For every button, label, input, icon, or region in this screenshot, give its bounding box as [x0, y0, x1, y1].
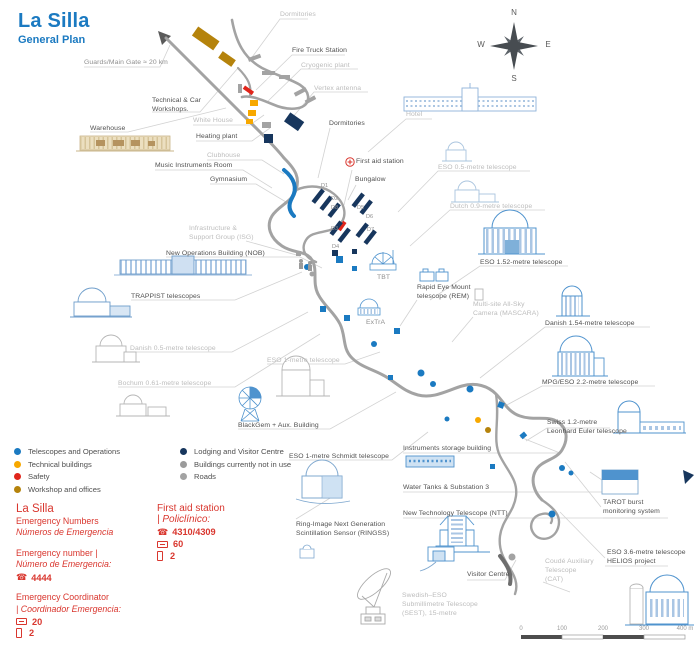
emergency-number-label-en: Emergency number | — [16, 548, 151, 559]
danish-05-telescope-label: Danish 0.5-metre telescope — [130, 345, 216, 354]
scale-tick-label: 100 — [557, 626, 567, 632]
cat-36-illustration — [625, 575, 694, 625]
dorm-label-d2: D2 — [331, 196, 338, 202]
coordinator-phone-value: 2 — [29, 628, 34, 638]
vertex-antenna-label: Vertex antenna — [314, 85, 361, 94]
legend-dot-icon — [14, 448, 21, 455]
blue-route — [284, 170, 295, 216]
dorm-label-d1: D1 — [321, 183, 328, 189]
bochum-telescope-label: Bochum 0.61-metre telescope — [118, 380, 211, 389]
compass-east-label: E — [545, 40, 550, 49]
dorm-label-d8: D8 — [331, 205, 338, 211]
map-title: La Silla — [18, 10, 90, 33]
eso-152-illustration — [478, 210, 545, 254]
first-aid-panel: First aid station | Policlínico: ☎4310/4… — [157, 503, 277, 561]
legend-item: Buildings currently not in use — [180, 460, 291, 469]
rem-telescope-label: Rapid Eye Mounttelescope (REM) — [417, 284, 471, 302]
scale-tick-label: 200 — [598, 626, 608, 632]
warehouse-illustration — [76, 136, 174, 151]
bungalow-label: Bungalow — [355, 176, 386, 185]
legend-dot-icon — [14, 473, 21, 480]
first-aid-radio-value: 60 — [173, 539, 183, 549]
extra-illustration — [358, 299, 380, 315]
legend-item-label: Workshop and offices — [28, 485, 101, 494]
legend: Telescopes and OperationsTechnical build… — [14, 447, 291, 497]
mascara-camera-label: Multi-site All-SkyCamera (MASCARA) — [473, 301, 539, 319]
danish-154-telescope-label: Danish 1.54-metre telescope — [545, 320, 635, 329]
mpg-22-illustration — [552, 336, 608, 376]
dormitories-main-label: Dormitories — [329, 120, 365, 129]
technical-buildings — [246, 100, 481, 423]
compass-north-label: N — [511, 8, 517, 17]
extra-label: ExTrA — [366, 319, 385, 328]
scale-tick-label: 0 — [519, 626, 522, 632]
legend-item-label: Telescopes and Operations — [28, 447, 120, 456]
legend-dot-icon — [180, 448, 187, 455]
nob-illustration — [114, 256, 252, 275]
legend-column-right: Lodging and Visitor CentreBuildings curr… — [180, 447, 291, 497]
first-aid-mobile-value: 2 — [170, 551, 175, 561]
gymnasium-label: Gymnasium — [210, 176, 247, 185]
legend-item-label: Technical buildings — [28, 460, 92, 469]
dorm-label-d7: D7 — [367, 227, 374, 233]
storage-illustration — [406, 456, 454, 467]
legend-dot-icon — [180, 461, 187, 468]
fire-truck-station-label: Fire Truck Station — [292, 47, 347, 56]
danish-154-illustration — [556, 286, 590, 316]
nob-label: New Operations Building (NOB) — [166, 250, 265, 259]
tarot-label: TAROT burstmonitoring system — [603, 499, 660, 517]
page-title: La Silla General Plan — [18, 10, 90, 46]
swiss-euler-telescope-label: Swiss 1.2-metreLeonhard Euler telescope — [547, 419, 627, 437]
dorm-label-d4: D4 — [332, 244, 339, 250]
dorm-label-d6: D6 — [366, 214, 373, 220]
legend-item-label: Lodging and Visitor Centre — [194, 447, 284, 456]
schmidt-illustration — [296, 460, 350, 504]
dutch-09-telescope-label: Dutch 0.9-metre telescope — [450, 203, 532, 212]
la-silla-map: La Silla General Plan N E S W Guards/Mai… — [0, 0, 700, 656]
emergency-subheading-en: Emergency Numbers — [16, 516, 151, 527]
water-tanks-label: Water Tanks & Substation 3 — [403, 484, 489, 493]
first-aid-heading: First aid station — [157, 503, 277, 514]
ntt-label: New Technology Telescope (NTT) — [403, 510, 508, 519]
first-aid-station-map-label: First aid station — [356, 158, 404, 167]
emergency-subheading-es: Números de Emergencia — [16, 527, 151, 538]
emergency-panel: La Silla Emergency Numbers Números de Em… — [16, 503, 151, 638]
phone-icon: ☎ — [16, 572, 27, 583]
ringss-label: Ring-Image Next GenerationScintillation … — [296, 521, 389, 539]
coordinator-label-es: | Coordinador Emergencia: — [16, 604, 151, 615]
eso-05-illustration — [442, 142, 472, 161]
clubhouse-label: Clubhouse — [207, 152, 240, 161]
visitor-centre-illustration — [420, 547, 454, 571]
eso-schmidt-telescope-label: ESO 1-metre Schmidt telescope — [289, 453, 389, 462]
emergency-heading: La Silla — [16, 503, 151, 515]
coordinator-radio-value: 20 — [32, 617, 42, 627]
rem-illustration — [420, 269, 448, 281]
coordinator-label-en: Emergency Coordinator — [16, 592, 151, 603]
mobile-phone-icon — [157, 551, 163, 561]
trappist-telescopes-label: TRAPPIST telescopes — [131, 293, 200, 302]
white-house-label: White House — [193, 117, 233, 126]
scale-tick-label: 400 m — [677, 626, 694, 632]
legend-dot-icon — [180, 473, 187, 480]
legend-item: Telescopes and Operations — [14, 447, 120, 456]
legend-item: Workshop and offices — [14, 485, 120, 494]
tarot-illustration — [602, 470, 638, 494]
scale-bar — [521, 635, 685, 639]
hotel-illustration — [404, 83, 536, 111]
sest-illustration — [353, 564, 395, 624]
mpg-22-telescope-label: MPG/ESO 2.2-metre telescope — [542, 379, 638, 388]
legend-item: Safety — [14, 472, 120, 481]
cryogenic-plant-label: Cryogenic plant — [301, 62, 350, 71]
heating-plant-label: Heating plant — [196, 133, 237, 142]
tbt-label: TBT — [377, 274, 390, 283]
legend-item: Roads — [180, 472, 291, 481]
mobile-phone-icon — [16, 628, 22, 638]
eso-1m-telescope-label: ESO 1-metre telescope — [267, 357, 340, 366]
eso-152-telescope-label: ESO 1.52-metre telescope — [480, 259, 563, 268]
phone-icon: ☎ — [157, 527, 168, 538]
pager-icon — [157, 541, 168, 548]
legend-item: Lodging and Visitor Centre — [180, 447, 291, 456]
legend-item: Technical buildings — [14, 460, 120, 469]
compass-south-label: S — [511, 74, 516, 83]
map-subtitle: General Plan — [18, 34, 90, 46]
emergency-number-value: 4444 — [31, 573, 51, 583]
ringss-illustration — [300, 545, 314, 558]
isg-label: Infrastructure &Support Group (ISG) — [189, 225, 254, 243]
guards-main-gate-label: Guards/Main Gate ≈ 20 km — [84, 59, 168, 68]
first-aid-marker-icon — [346, 158, 354, 166]
legend-dot-icon — [14, 486, 21, 493]
mascara-illustration — [475, 289, 483, 300]
instruments-storage-label: Instruments storage building — [403, 445, 491, 454]
warehouse-label: Warehouse — [90, 125, 125, 134]
dormitories-top-label: Dormitories — [280, 11, 316, 20]
blackgem-label: BlackGem + Aux. Building — [238, 422, 319, 431]
visitor-centre-label: Visitor Centre — [467, 571, 509, 580]
emergency-number-label-es: Número de Emergencia: — [16, 559, 151, 570]
bochum-illustration — [116, 395, 170, 416]
hotel-label: Hotel — [406, 111, 422, 120]
compass-west-label: W — [477, 40, 485, 49]
dutch-09-illustration — [451, 181, 499, 202]
technical-car-workshops-label: Technical & CarWorkshops. — [152, 97, 201, 115]
eso-05-telescope-label: ESO 0.5-metre telescope — [438, 164, 517, 173]
legend-column-left: Telescopes and OperationsTechnical build… — [14, 447, 120, 497]
scale-tick-label: 300 — [639, 626, 649, 632]
legend-item-label: Safety — [28, 472, 50, 481]
legend-item-label: Roads — [194, 472, 216, 481]
cat-label: Coudé AuxiliaryTelescope(CAT) — [545, 558, 594, 584]
tbt-illustration — [370, 250, 396, 270]
sest-label: Swedish–ESOSubmillimetre Telescope(SEST)… — [402, 592, 478, 618]
legend-dot-icon — [14, 461, 21, 468]
dorm-label-d5: D5 — [357, 205, 364, 211]
trappist-illustration — [70, 288, 132, 317]
first-aid-heading-es: | Policlínico: — [157, 514, 277, 525]
first-aid-phone-value: 4310/4309 — [172, 527, 215, 537]
eso-36-telescope-label: ESO 3.6-metre telescopeHELIOS project — [607, 549, 686, 567]
compass-rose-icon — [490, 22, 538, 70]
blackgem-illustration — [239, 387, 261, 421]
dorm-label-d3: D3 — [331, 226, 338, 232]
pager-icon — [16, 618, 27, 625]
legend-item-label: Buildings currently not in use — [194, 460, 291, 469]
music-instruments-room-label: Music Instruments Room — [155, 162, 232, 171]
